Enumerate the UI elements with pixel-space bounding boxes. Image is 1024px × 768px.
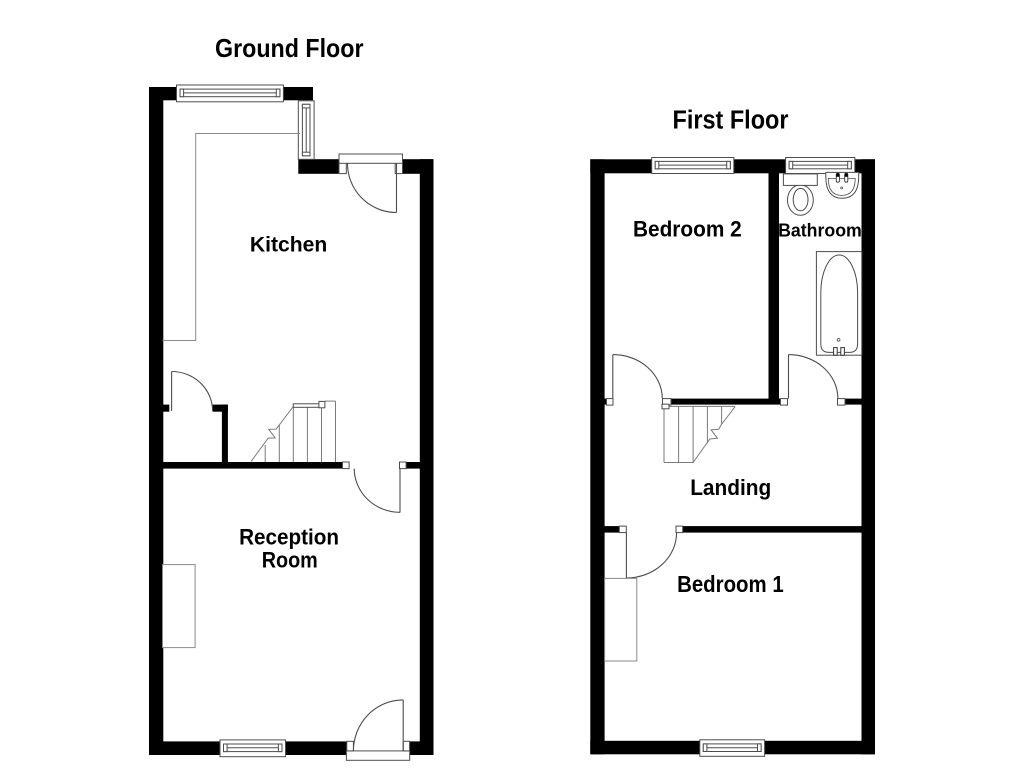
svg-text:Bedroom 1: Bedroom 1	[677, 571, 784, 597]
svg-text:Bedroom 2: Bedroom 2	[633, 217, 742, 242]
svg-text:Room: Room	[262, 547, 318, 572]
svg-text:Bathroom: Bathroom	[778, 219, 862, 240]
svg-text:Reception: Reception	[239, 524, 339, 549]
svg-text:Ground Floor: Ground Floor	[215, 33, 364, 63]
svg-text:Landing: Landing	[690, 475, 771, 500]
svg-text:Kitchen: Kitchen	[250, 232, 327, 257]
svg-text:First Floor: First Floor	[673, 106, 789, 134]
